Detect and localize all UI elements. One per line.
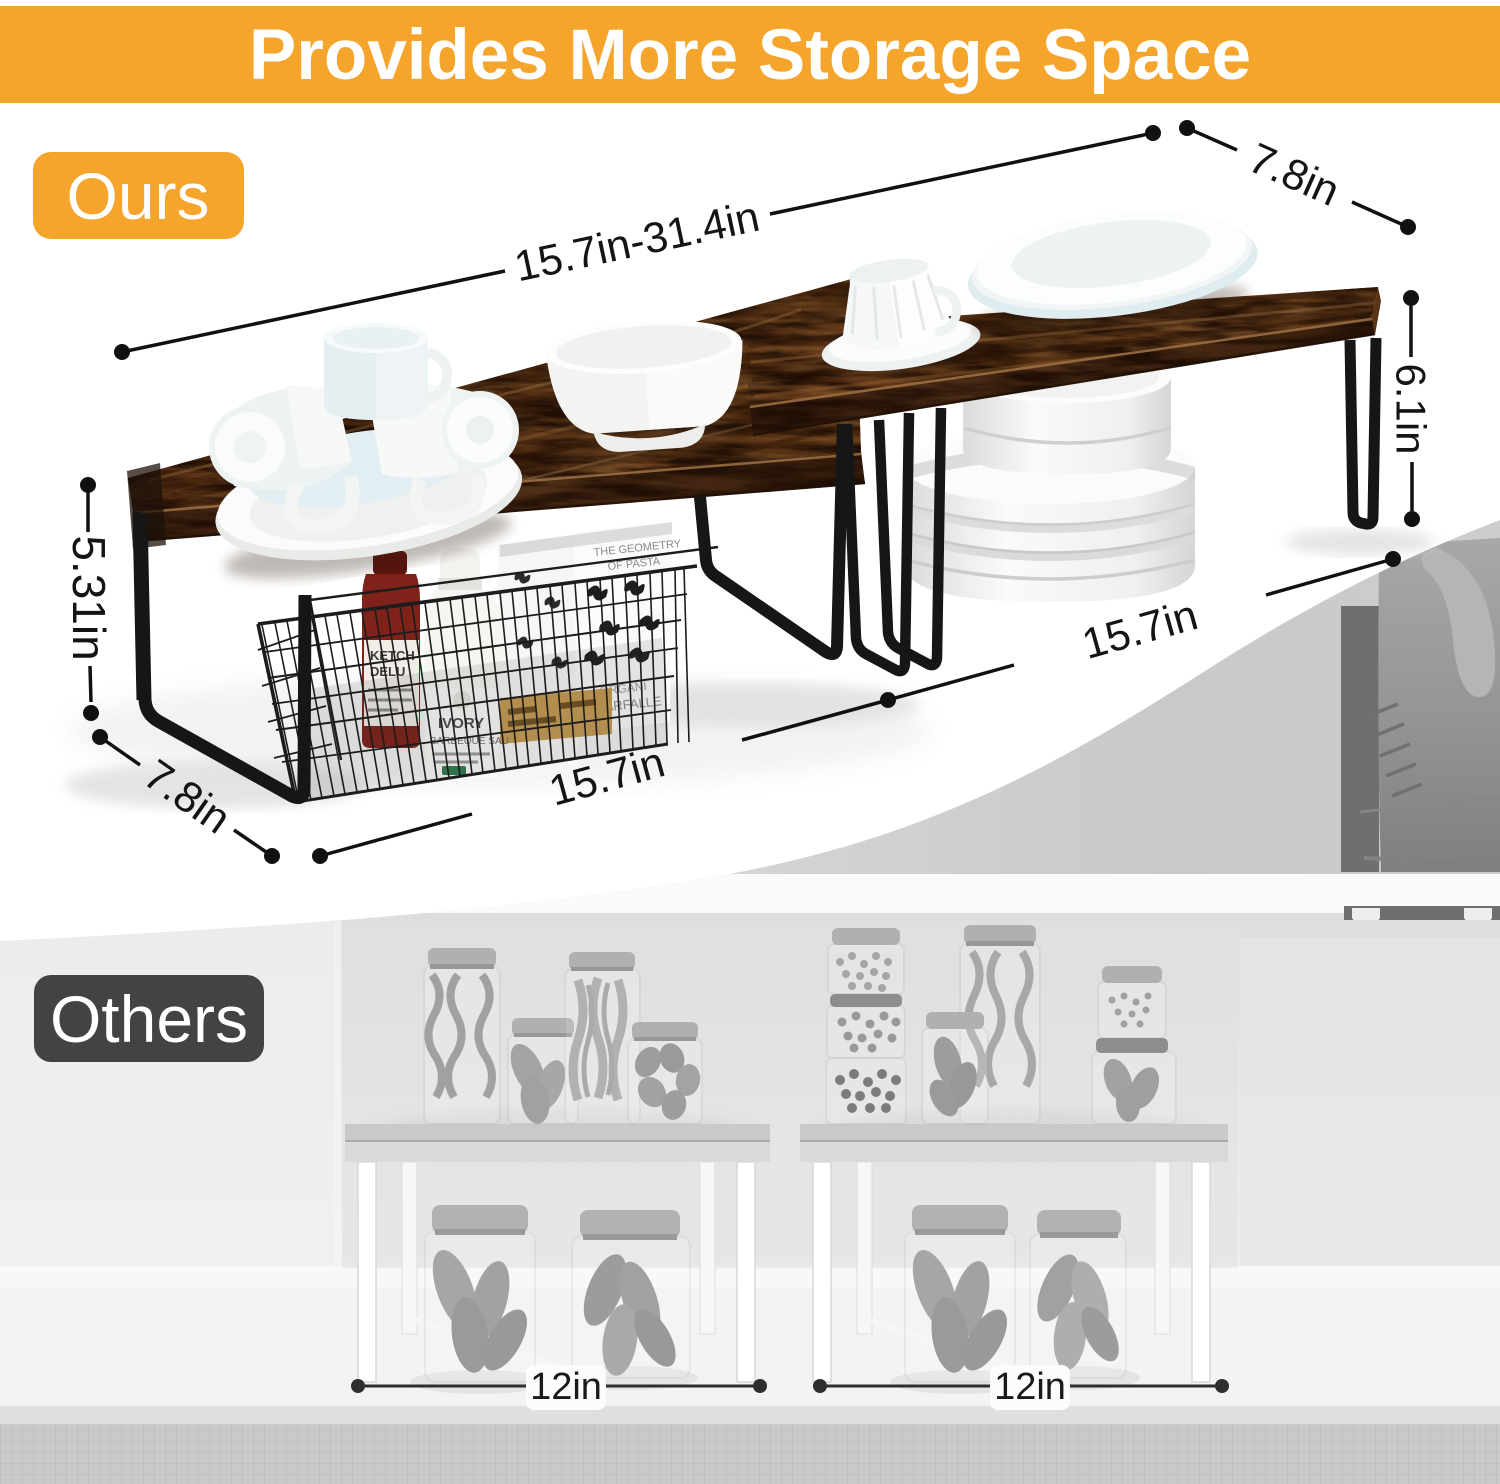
svg-text:Provides More Storage Space: Provides More Storage Space <box>249 16 1251 95</box>
svg-text:12in: 12in <box>994 1366 1066 1408</box>
svg-text:12in: 12in <box>530 1366 602 1408</box>
svg-text:5.31in: 5.31in <box>63 535 115 660</box>
svg-text:6.1in: 6.1in <box>1388 363 1435 454</box>
svg-text:Others: Others <box>50 982 248 1056</box>
svg-text:Ours: Ours <box>66 159 209 233</box>
